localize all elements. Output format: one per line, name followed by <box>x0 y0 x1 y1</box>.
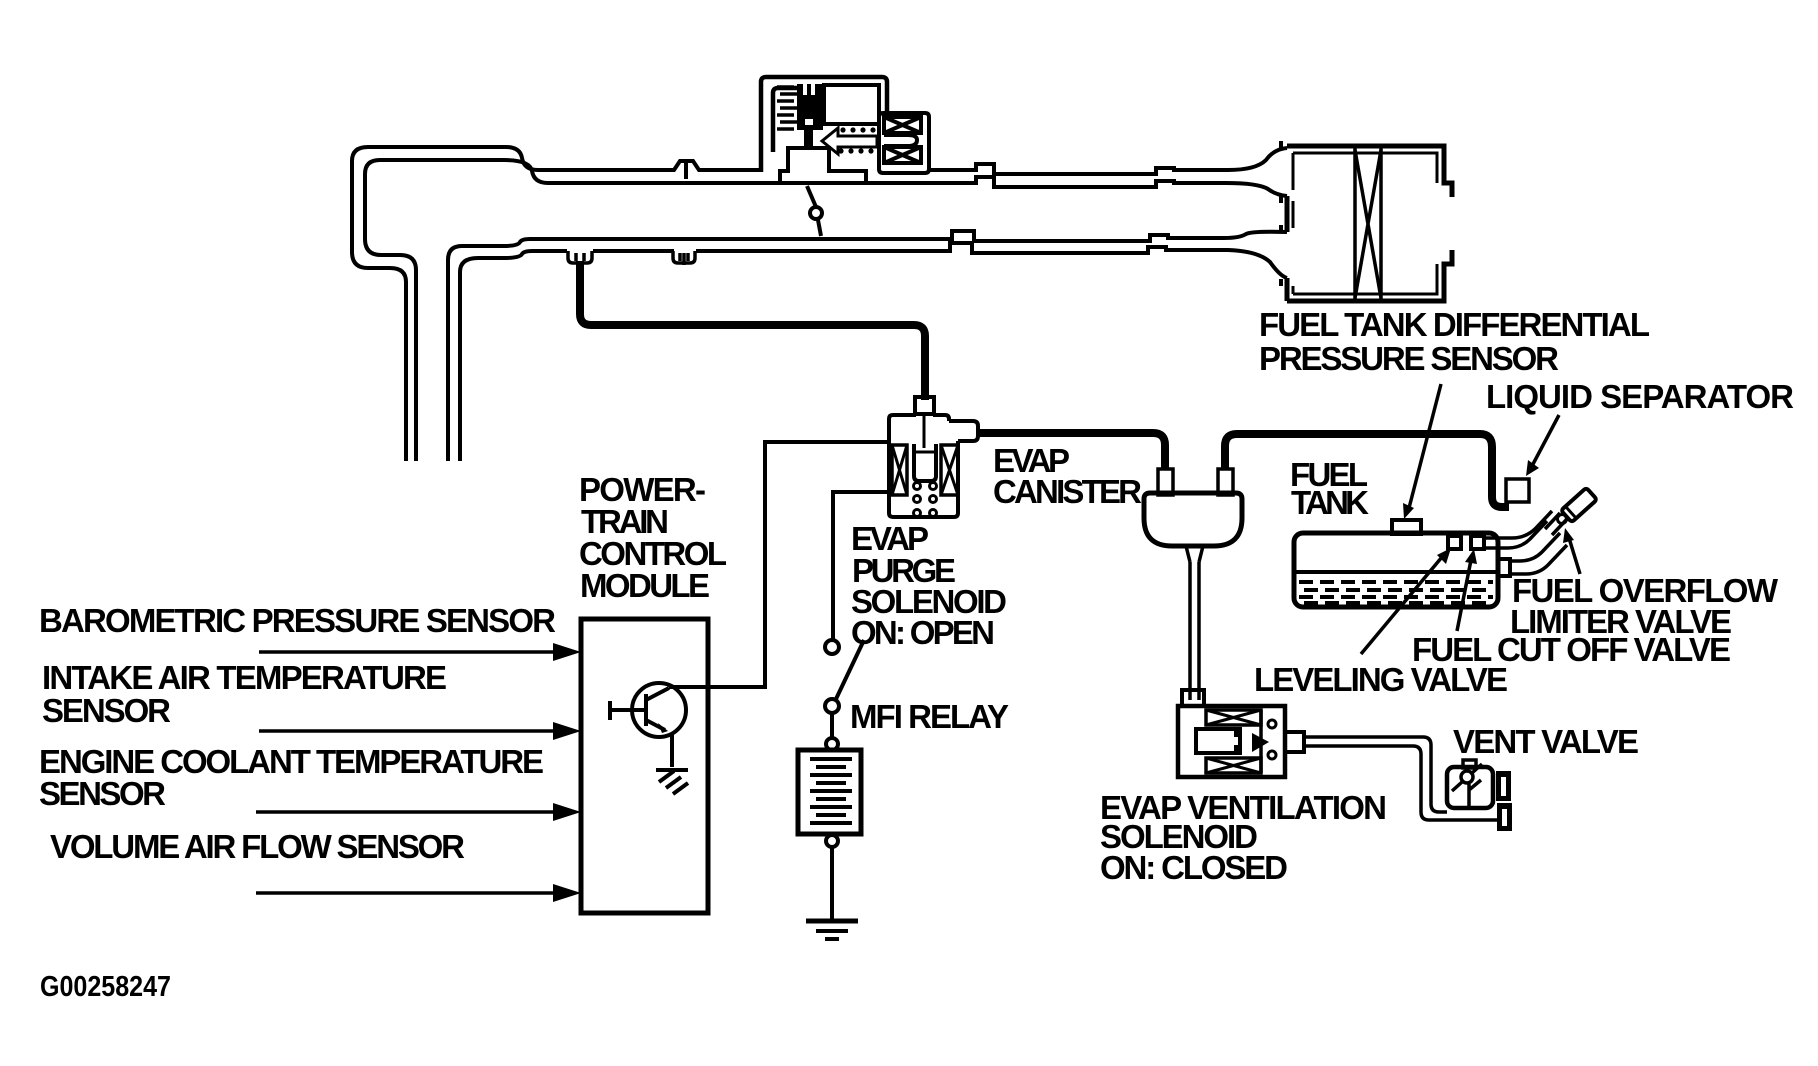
svg-text:SENSOR: SENSOR <box>39 775 166 812</box>
svg-text:INTAKE AIR TEMPERATURE: INTAKE AIR TEMPERATURE <box>42 659 447 696</box>
svg-text:VENT VALVE: VENT VALVE <box>1453 723 1639 760</box>
svg-text:LEVELING VALVE: LEVELING VALVE <box>1254 661 1508 698</box>
svg-text:LIQUID SEPARATOR: LIQUID SEPARATOR <box>1486 378 1794 415</box>
svg-text:MODULE: MODULE <box>580 567 710 604</box>
svg-text:MFI RELAY: MFI RELAY <box>850 698 1009 735</box>
svg-text:SENSOR: SENSOR <box>42 692 171 729</box>
svg-text:CANISTER: CANISTER <box>993 473 1142 510</box>
svg-text:ON: CLOSED: ON: CLOSED <box>1100 849 1288 886</box>
svg-text:FUEL TANK DIFFERENTIAL: FUEL TANK DIFFERENTIAL <box>1259 306 1650 343</box>
svg-text:VOLUME AIR FLOW SENSOR: VOLUME AIR FLOW SENSOR <box>50 828 465 865</box>
svg-text:TANK: TANK <box>1291 484 1369 521</box>
svg-text:PRESSURE SENSOR: PRESSURE SENSOR <box>1259 340 1559 377</box>
svg-text:BAROMETRIC PRESSURE SENSOR: BAROMETRIC PRESSURE SENSOR <box>39 602 556 639</box>
svg-text:G00258247: G00258247 <box>40 971 171 1003</box>
svg-text:ON: OPEN: ON: OPEN <box>851 614 995 651</box>
